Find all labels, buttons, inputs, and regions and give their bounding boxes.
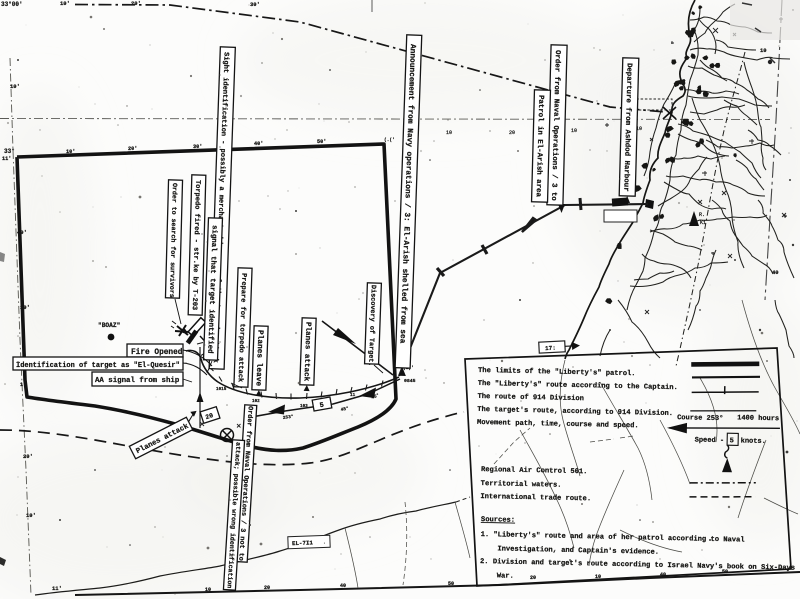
svg-text:AA signal from ship: AA signal from ship — [95, 377, 180, 385]
svg-text:33°00': 33°00' — [1, 1, 23, 8]
svg-text:.: . — [323, 540, 326, 545]
svg-text:40: 40 — [772, 269, 779, 276]
svg-text:"BOAZ": "BOAZ" — [98, 322, 120, 329]
svg-text:10': 10' — [60, 0, 70, 7]
svg-text:11': 11' — [2, 156, 11, 162]
svg-text:10: 10 — [205, 587, 211, 593]
svg-text:40: 40 — [340, 583, 346, 589]
svg-text:50': 50' — [317, 139, 326, 145]
svg-text:10: 10 — [571, 128, 577, 134]
svg-text:103: 103 — [300, 404, 308, 409]
svg-text:50: 50 — [448, 581, 454, 587]
svg-text:knots.: knots. — [741, 437, 766, 446]
svg-text:20': 20' — [131, 0, 141, 7]
svg-text:10': 10' — [10, 83, 20, 90]
svg-text:Territorial waters.: Territorial waters. — [481, 480, 562, 490]
svg-text:EL-7I1: EL-7I1 — [292, 539, 314, 547]
svg-text:K1: K1 — [700, 220, 706, 226]
svg-text:11: 11 — [350, 393, 356, 398]
svg-text:5: 5 — [730, 437, 734, 445]
svg-text:10': 10' — [26, 512, 36, 519]
svg-text:20: 20 — [530, 575, 536, 581]
svg-text:(.(': (.(' — [384, 137, 395, 143]
svg-text:0845: 0845 — [404, 378, 416, 384]
svg-text:33°: 33° — [4, 148, 15, 155]
svg-text:40': 40' — [254, 141, 263, 147]
svg-text:11': 11' — [52, 585, 62, 592]
svg-text:War.: War. — [497, 572, 514, 580]
svg-text:17:: 17: — [545, 345, 556, 353]
svg-text:20: 20 — [509, 130, 515, 136]
svg-text:R.: R. — [699, 212, 705, 218]
svg-text:Speed -: Speed - — [695, 436, 725, 445]
svg-text:1015: 1015 — [216, 387, 227, 392]
svg-text:10: 10 — [760, 47, 767, 54]
svg-text:Sources:: Sources: — [481, 516, 515, 525]
svg-text:Identification of target as "E: Identification of target as "El-Quesir" — [16, 362, 180, 370]
svg-text:30': 30' — [250, 1, 260, 8]
svg-text:Fire Opened: Fire Opened — [131, 349, 183, 357]
svg-text:102: 102 — [252, 399, 260, 404]
svg-text:1400 hours: 1400 hours — [737, 414, 779, 423]
svg-text:10: 10 — [446, 130, 452, 136]
svg-text:Course 253°: Course 253° — [677, 413, 723, 423]
svg-text:20: 20 — [264, 585, 270, 591]
svg-text:20': 20' — [23, 453, 33, 460]
